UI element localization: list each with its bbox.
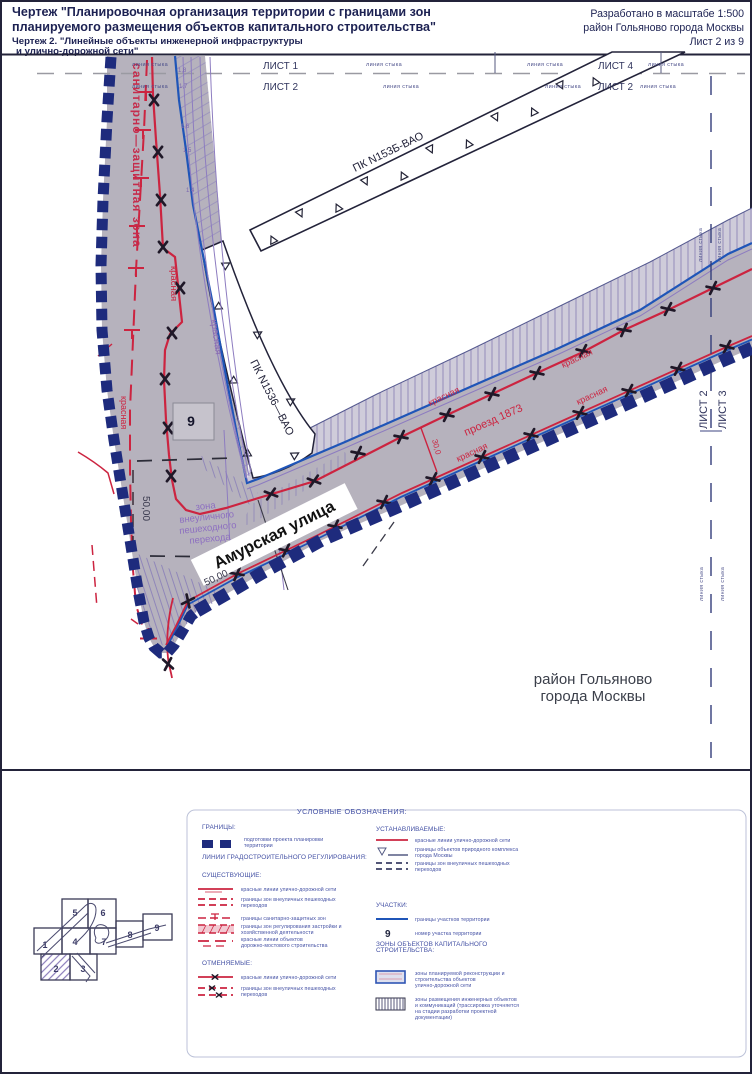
svg-text:линия стыка: линия стыка bbox=[383, 84, 420, 90]
svg-text:линия стыка: линия стыка bbox=[132, 62, 169, 68]
svg-text:города Москвы: города Москвы bbox=[541, 688, 646, 705]
svg-text:Лист 2 из 9: Лист 2 из 9 bbox=[690, 36, 745, 48]
svg-text:санитарно—защитная зона: санитарно—защитная зона bbox=[130, 63, 144, 248]
svg-text:красная: красная bbox=[119, 396, 129, 429]
svg-text:2: 2 bbox=[53, 964, 58, 974]
svg-text:ЛИСТ 3: ЛИСТ 3 bbox=[717, 390, 729, 429]
svg-text:планируемого размещения объект: планируемого размещения объектов капитал… bbox=[12, 20, 436, 34]
svg-text:красные линии улично-дорожной: красные линии улично-дорожной сети bbox=[415, 837, 510, 844]
svg-text:6: 6 bbox=[100, 908, 105, 918]
svg-text:9: 9 bbox=[187, 413, 195, 429]
svg-text:дорожно-мостового строительств: дорожно-мостового строительства bbox=[241, 943, 328, 949]
svg-text:линия стыка: линия стыка bbox=[527, 62, 564, 68]
svg-text:линия стыка: линия стыка bbox=[640, 84, 677, 90]
svg-text:линия стыка: линия стыка bbox=[698, 228, 704, 262]
svg-text:документации): документации) bbox=[415, 1015, 452, 1021]
svg-text:линия стыка: линия стыка bbox=[366, 62, 403, 68]
svg-text:ЛИСТ 4: ЛИСТ 4 bbox=[598, 61, 634, 72]
svg-text:Чертеж "Планировочная организа: Чертеж "Планировочная организация террит… bbox=[12, 5, 431, 19]
svg-text:хозяйственной деятельности: хозяйственной деятельности bbox=[241, 929, 314, 936]
svg-text:ОТМЕНЯЕМЫЕ:: ОТМЕНЯЕМЫЕ: bbox=[202, 960, 252, 967]
svg-text:район Гольяново города Москвы: район Гольяново города Москвы bbox=[583, 22, 744, 34]
svg-text:красные линии улично-дорожной: красные линии улично-дорожной сети bbox=[241, 974, 336, 981]
svg-text:линия стыка: линия стыка bbox=[717, 228, 723, 262]
svg-text:ЛИСТ 2: ЛИСТ 2 bbox=[698, 390, 710, 429]
svg-text:зоны планируемой реконструкции: зоны планируемой реконструкции и bbox=[415, 970, 505, 977]
svg-text:1,5: 1,5 bbox=[183, 148, 192, 154]
svg-text:50,00: 50,00 bbox=[140, 496, 151, 521]
svg-text:ГРАНИЦЫ:: ГРАНИЦЫ: bbox=[202, 824, 236, 831]
svg-text:9: 9 bbox=[385, 929, 391, 940]
svg-text:переходов: переходов bbox=[241, 992, 267, 998]
svg-text:1,6: 1,6 bbox=[181, 124, 190, 130]
svg-text:1,4: 1,4 bbox=[186, 188, 195, 194]
svg-text:границы участков территории: границы участков территории bbox=[415, 917, 490, 923]
svg-text:линия стыка: линия стыка bbox=[545, 84, 582, 90]
svg-text:города Москвы: города Москвы bbox=[415, 853, 453, 859]
svg-text:на стадии разработки проектной: на стадии разработки проектной bbox=[415, 1008, 497, 1015]
svg-text:УСТАНАВЛИВАЕМЫЕ:: УСТАНАВЛИВАЕМЫЕ: bbox=[376, 826, 446, 833]
svg-text:границы санитарно-защитных зон: границы санитарно-защитных зон bbox=[241, 916, 326, 922]
svg-text:Разработано в масштабе 1:500: Разработано в масштабе 1:500 bbox=[590, 8, 744, 20]
svg-text:ЛИСТ 1: ЛИСТ 1 bbox=[263, 61, 299, 72]
svg-text:границы зон регулирования заст: границы зон регулирования застройки и bbox=[241, 923, 342, 930]
svg-text:3: 3 bbox=[80, 964, 85, 974]
svg-text:4: 4 bbox=[72, 937, 77, 947]
svg-text:улично-дорожной сети: улично-дорожной сети bbox=[415, 982, 471, 989]
svg-text:СУЩЕСТВУЮЩИЕ:: СУЩЕСТВУЮЩИЕ: bbox=[202, 872, 262, 879]
svg-text:УЧАСТКИ:: УЧАСТКИ: bbox=[376, 902, 408, 909]
svg-text:район Гольяново: район Гольяново bbox=[534, 671, 652, 688]
svg-text:переходов: переходов bbox=[241, 903, 267, 909]
svg-text:1,8: 1,8 bbox=[178, 68, 187, 74]
svg-text:территории: территории bbox=[244, 843, 273, 849]
svg-text:УСЛОВНЫЕ ОБОЗНАЧЕНИЯ:: УСЛОВНЫЕ ОБОЗНАЧЕНИЯ: bbox=[297, 807, 407, 816]
svg-text:переходов: переходов bbox=[415, 867, 441, 873]
svg-text:линия стыка: линия стыка bbox=[132, 84, 169, 90]
svg-text:линия стыка: линия стыка bbox=[720, 567, 726, 601]
svg-text:красная: красная bbox=[168, 266, 179, 301]
svg-text:и коммуникаций (трассировка ут: и коммуникаций (трассировка уточняется bbox=[415, 1002, 519, 1009]
svg-text:линия стыка: линия стыка bbox=[648, 62, 685, 68]
svg-text:ЛИСТ 2: ЛИСТ 2 bbox=[263, 82, 299, 93]
svg-text:ЛИСТ 2: ЛИСТ 2 bbox=[598, 82, 634, 93]
svg-text:номер участка территории: номер участка территории bbox=[415, 931, 482, 937]
svg-text:СТРОИТЕЛЬСТВА:: СТРОИТЕЛЬСТВА: bbox=[376, 947, 434, 954]
svg-text:ЛИНИИ ГРАДОСТРОИТЕЛЬНОГО РЕГУЛ: ЛИНИИ ГРАДОСТРОИТЕЛЬНОГО РЕГУЛИРОВАНИЯ: bbox=[202, 854, 367, 861]
svg-text:красные линии улично-дорожной: красные линии улично-дорожной сети bbox=[241, 886, 336, 893]
svg-text:1,7: 1,7 bbox=[179, 84, 188, 90]
svg-text:линия стыка: линия стыка bbox=[699, 567, 705, 601]
